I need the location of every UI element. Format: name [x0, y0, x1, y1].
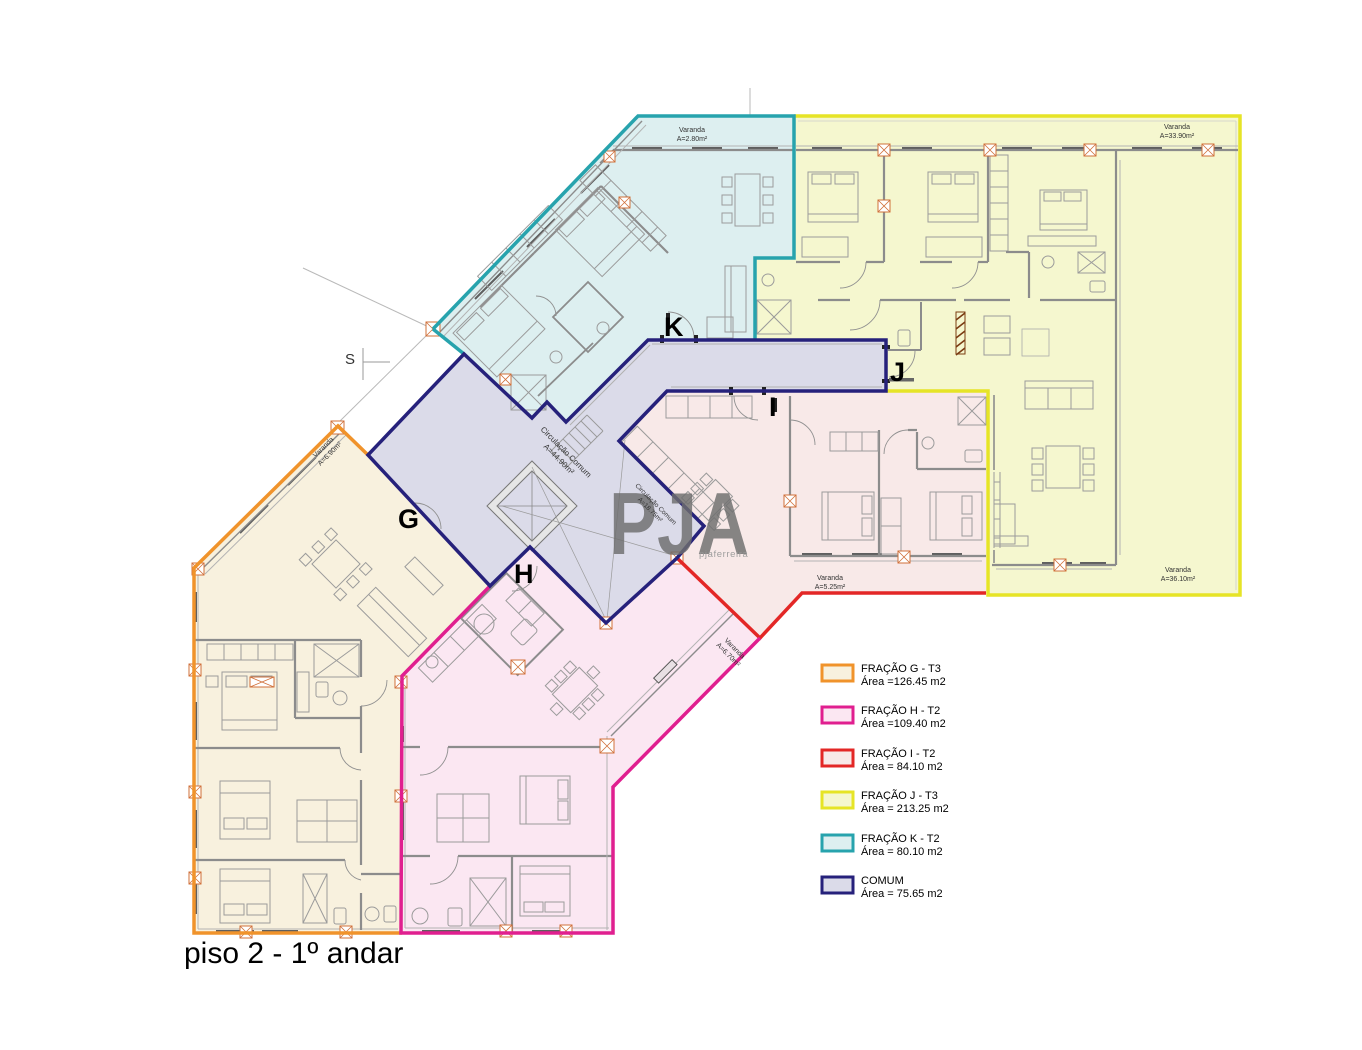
svg-text:piso 2 - 1º andar: piso 2 - 1º andar [184, 937, 403, 970]
svg-text:Área = 84.10 m2: Área = 84.10 m2 [861, 760, 943, 773]
svg-text:FRAÇÃO K - T2: FRAÇÃO K - T2 [861, 832, 940, 845]
svg-text:G: G [398, 504, 419, 534]
svg-text:Área = 213.25 m2: Área = 213.25 m2 [861, 802, 949, 815]
svg-text:A=33.90m²: A=33.90m² [1160, 133, 1195, 140]
svg-text:Varanda: Varanda [817, 575, 843, 582]
svg-text:FRAÇÃO G - T3: FRAÇÃO G - T3 [861, 662, 941, 675]
svg-text:S: S [345, 351, 355, 368]
svg-text:Área = 80.10 m2: Área = 80.10 m2 [861, 845, 943, 858]
svg-text:pjaferreira: pjaferreira [699, 549, 748, 560]
svg-text:Área =126.45 m2: Área =126.45 m2 [861, 675, 946, 688]
svg-text:COMUM: COMUM [861, 875, 904, 887]
svg-text:A=36.10m²: A=36.10m² [1161, 576, 1196, 583]
svg-text:K: K [664, 312, 684, 342]
svg-text:FRAÇÃO J - T3: FRAÇÃO J - T3 [861, 789, 938, 802]
svg-text:Varanda: Varanda [1165, 567, 1191, 574]
svg-text:J: J [890, 357, 905, 387]
svg-text:FRAÇÃO H - T2: FRAÇÃO H - T2 [861, 704, 940, 717]
svg-text:Varanda: Varanda [679, 127, 705, 134]
svg-text:I: I [769, 392, 777, 422]
svg-text:H: H [514, 559, 534, 589]
svg-text:A=5.25m²: A=5.25m² [815, 584, 846, 591]
svg-text:Área =109.40 m2: Área =109.40 m2 [861, 717, 946, 730]
svg-text:A=2.80m²: A=2.80m² [677, 136, 708, 143]
svg-text:FRAÇÃO I - T2: FRAÇÃO I - T2 [861, 747, 935, 760]
svg-text:Varanda: Varanda [1164, 124, 1190, 131]
svg-text:Área = 75.65 m2: Área = 75.65 m2 [861, 887, 943, 900]
